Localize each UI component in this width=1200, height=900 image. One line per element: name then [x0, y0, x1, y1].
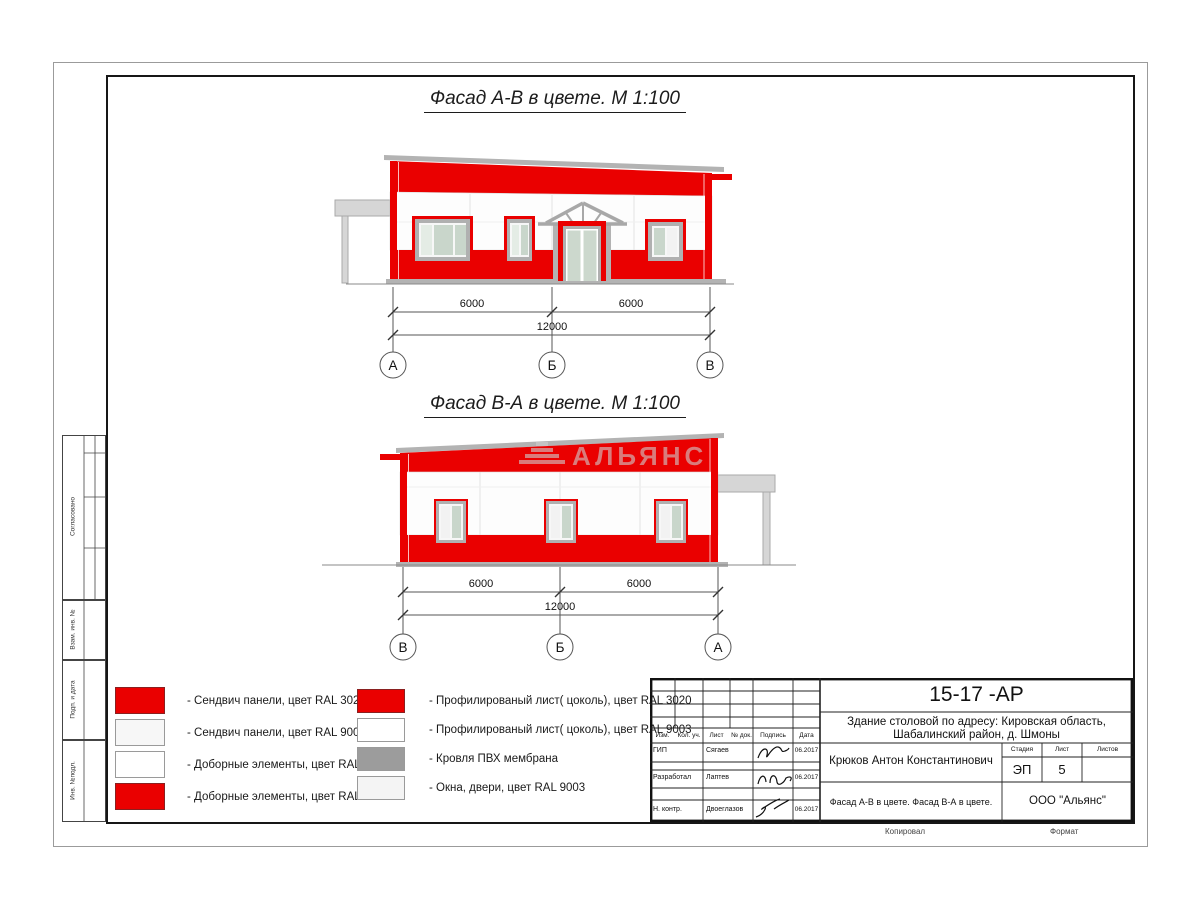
signature-gip: [758, 747, 789, 758]
window-1: [434, 499, 468, 545]
sidebar-label-inv-orig: Инв. №подл.: [70, 744, 77, 818]
legend-item: - Профилированый лист( цоколь), цвет RAL…: [357, 689, 692, 713]
axis-letter: А: [388, 358, 397, 373]
signature-ncontrol: [756, 799, 789, 817]
entrance-door: [554, 221, 610, 285]
legend-label: - Кровля ПВХ мембрана: [429, 753, 558, 765]
legend-right-column: - Профилированый лист( цоколь), цвет RAL…: [357, 689, 692, 805]
dim-label: 6000: [619, 298, 643, 310]
object-line-2: Шабалинский район, д. Шмоны: [822, 729, 1131, 742]
right-canopy-post: [763, 492, 770, 565]
col-ndok: № док.: [730, 732, 753, 739]
axis-letter: Б: [556, 640, 565, 655]
stage-col: Стадия: [1002, 746, 1042, 753]
company-name: ООО "Альянс": [1002, 795, 1133, 807]
sheets-col: Листов: [1082, 746, 1133, 753]
left-canopy-slab: [335, 200, 390, 216]
legend-swatch: [357, 689, 405, 713]
legend-item: - Профилированый лист( цоколь), цвет RAL…: [357, 718, 692, 742]
col-kol: Кол. уч.: [675, 732, 703, 739]
legend-swatch: [115, 751, 165, 778]
axis-letter: В: [705, 358, 714, 373]
legend-left-column: - Сендвич панели, цвет RAL 3020 - Сендви…: [115, 687, 389, 815]
signature-developer: [758, 776, 791, 785]
right-fascia: [712, 174, 732, 180]
facade-ab-drawing: 6000 6000 12000 А Б В: [320, 135, 780, 390]
legend-swatch: [115, 783, 165, 810]
window-2: [504, 216, 535, 264]
facade-ba-drawing: АЛЬЯНС: [320, 415, 800, 670]
row-name: Лаптев: [706, 774, 752, 781]
legend-swatch: [357, 718, 405, 742]
legend-item: - Доборные элементы, цвет RAL 3020: [115, 783, 389, 810]
legend-label: - Окна, двери, цвет RAL 9003: [429, 782, 585, 794]
legend-swatch: [357, 776, 405, 800]
signature-strokes: [756, 747, 791, 817]
sidebar-label-replace-inv: Взам. инв. №: [70, 600, 77, 660]
copied-label: Копировал: [885, 827, 925, 836]
legend-swatch: [115, 687, 165, 714]
dim-label: 6000: [460, 298, 484, 310]
col-date: Дата: [793, 732, 820, 739]
left-canopy-post: [342, 216, 348, 283]
window-3: [654, 499, 688, 545]
window-1: [412, 216, 473, 264]
author-name: Крюков Антон Константинович: [822, 755, 1000, 767]
facade-ba-title: Фасад В-А в цвете. М 1:100: [330, 393, 780, 415]
legend-label: - Сендвич панели, цвет RAL 3020: [187, 695, 366, 707]
facade-ab-title: Фасад А-В в цвете. М 1:100: [330, 88, 780, 110]
facade-ab-title-text: Фасад А-В в цвете. М 1:100: [424, 88, 686, 113]
sidebar-label-sign-date: Подп. и дата: [70, 665, 77, 735]
col-sign: Подпись: [753, 732, 793, 739]
row-name: Сягаев: [706, 747, 752, 754]
drawing-sheet: Фасад А-В в цвете. М 1:100: [0, 0, 1200, 900]
object-line-1: Здание столовой по адресу: Кировская обл…: [822, 716, 1131, 729]
legend-item: - Окна, двери, цвет RAL 9003: [357, 776, 692, 800]
row-name: Двоеглазов: [706, 806, 752, 813]
sheet-col: Лист: [1042, 746, 1082, 753]
stage-value: ЭП: [1002, 762, 1042, 777]
col-izm: Изм.: [650, 732, 675, 739]
row-role: Разработал: [653, 774, 702, 781]
dim-label: 6000: [627, 578, 651, 590]
row-role: Н. контр.: [653, 806, 702, 813]
right-canopy-slab: [718, 475, 775, 492]
row-date: 06.2017: [793, 774, 820, 781]
doc-number: 15-17 -АР: [822, 683, 1131, 707]
dim-label: 12000: [537, 321, 568, 333]
window-2: [544, 499, 578, 545]
legend-item: - Сендвич панели, цвет RAL 9003: [115, 719, 389, 746]
sidebar-label-agreed: Согласовано: [70, 437, 77, 597]
axis-letter: В: [398, 640, 407, 655]
title-block: 15-17 -АР Здание столовой по адресу: Кир…: [650, 678, 1133, 822]
sheet-value: 5: [1042, 762, 1082, 777]
watermark-text: АЛЬЯНС: [572, 441, 707, 471]
sheet-title: Фасад А-В в цвете. Фасад В-А в цвете.: [822, 797, 1000, 807]
legend-swatch: [115, 719, 165, 746]
axis-letter: А: [713, 640, 722, 655]
window-3: [645, 219, 686, 264]
axis-letter: Б: [548, 358, 557, 373]
row-role: ГИП: [653, 747, 702, 754]
legend-swatch: [357, 747, 405, 771]
col-list: Лист: [703, 732, 730, 739]
legend-label: - Сендвич панели, цвет RAL 9003: [187, 727, 366, 739]
legend-item: - Доборные элементы, цвет RAL 9003: [115, 751, 389, 778]
object-description: Здание столовой по адресу: Кировская обл…: [822, 716, 1131, 742]
left-fascia: [380, 454, 400, 460]
dim-label: 6000: [469, 578, 493, 590]
dim-label: 12000: [545, 601, 576, 613]
legend-item: - Кровля ПВХ мембрана: [357, 747, 692, 771]
facade-ab-building: [335, 155, 734, 285]
format-label: Формат: [1050, 827, 1078, 836]
legend-item: - Сендвич панели, цвет RAL 3020: [115, 687, 389, 714]
facade-ba-building: АЛЬЯНС: [322, 433, 796, 567]
row-date: 06.2017: [793, 747, 820, 754]
row-date: 06.2017: [793, 806, 820, 813]
